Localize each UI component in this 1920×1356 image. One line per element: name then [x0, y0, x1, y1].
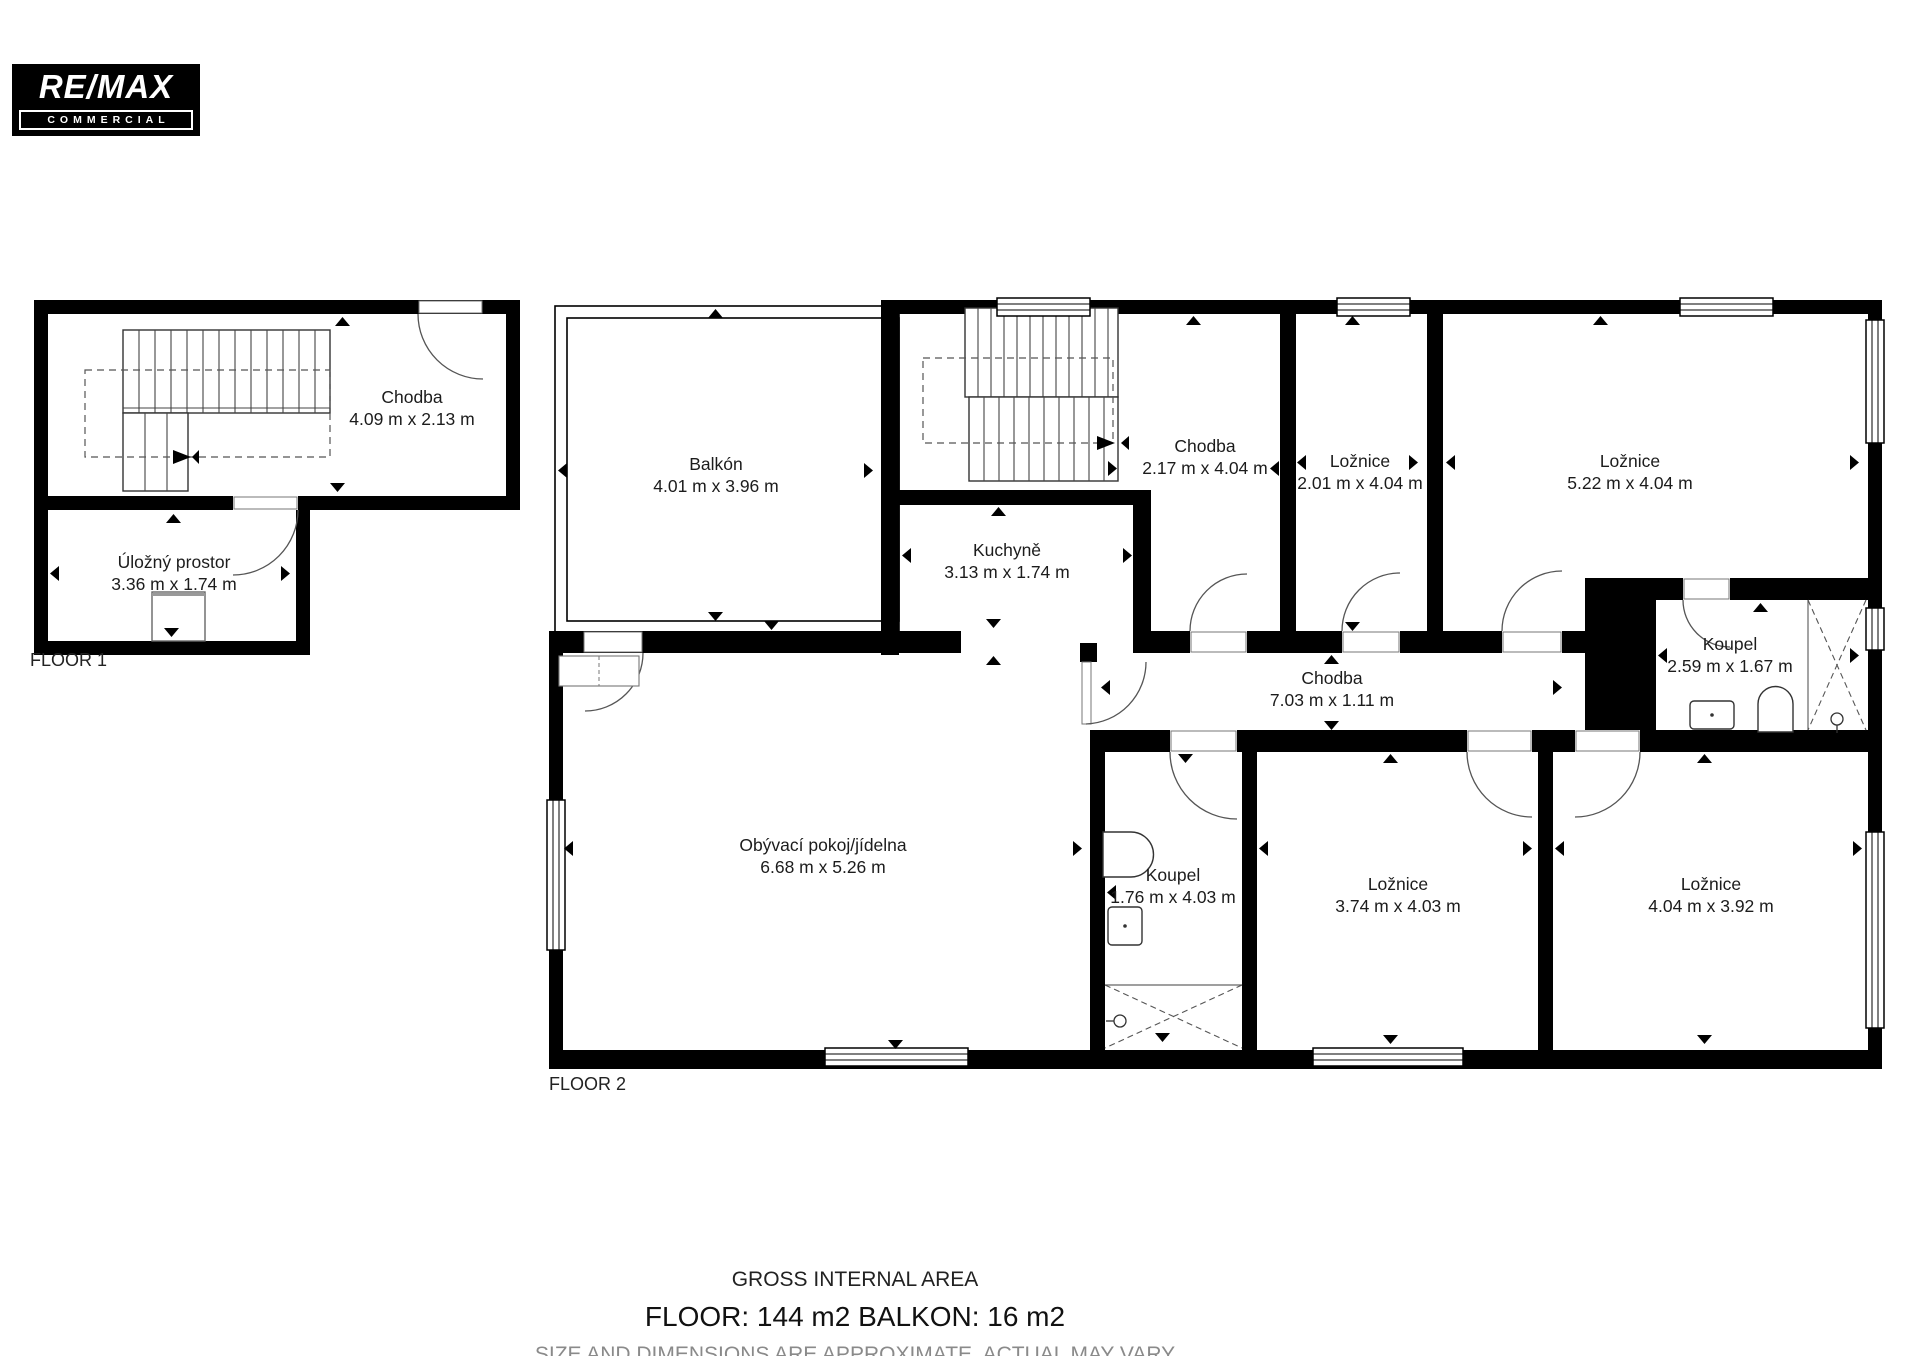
- floor2-walls: [549, 300, 1882, 1069]
- door-leaf: [1343, 632, 1399, 652]
- room-dims-loznice-velka: 5.22 m x 4.04 m: [1567, 473, 1692, 493]
- room-dims-kuchyne: 3.13 m x 1.74 m: [944, 562, 1069, 582]
- disclaimer-text: SIZE AND DIMENSIONS ARE APPROXIMATE, ACT…: [255, 1343, 1455, 1356]
- room-dims-chodba-schody: 2.17 m x 4.04 m: [1142, 458, 1267, 478]
- room-label-loznice-mala: Ložnice: [1330, 451, 1390, 471]
- room-dims-chodba: 4.09 m x 2.13 m: [349, 409, 474, 429]
- door-arc: [418, 314, 483, 379]
- logo-brand-text: RE/MAX: [12, 64, 200, 110]
- door-leaf: [1191, 632, 1246, 652]
- door-arc: [1170, 752, 1237, 819]
- room-label-kuchyne: Kuchyně: [973, 540, 1041, 560]
- door-leaf: [419, 301, 482, 313]
- floorplan-page: RE/MAX COMMERCIAL: [0, 0, 1920, 1356]
- room-label-loznice-prava: Ložnice: [1681, 874, 1741, 894]
- window-icon: [1866, 608, 1884, 650]
- logo-sub-text: COMMERCIAL: [19, 110, 193, 130]
- floor2-staircase: [923, 308, 1129, 481]
- closet-icon: [152, 592, 205, 641]
- window-icon: [1866, 320, 1884, 443]
- stair-direction-arrow-icon: [192, 450, 199, 464]
- door-arc: [1467, 752, 1532, 817]
- room-label-loznice-velka: Ložnice: [1600, 451, 1660, 471]
- window-icon: [1313, 1048, 1463, 1066]
- door-arc: [1575, 752, 1640, 817]
- room-label-chodba-schody: Chodba: [1174, 436, 1236, 456]
- dimension-markers: [558, 309, 1862, 1049]
- room-dims-ulozny-prostor: 3.36 m x 1.74 m: [111, 574, 236, 594]
- gross-internal-area-heading: GROSS INTERNAL AREA: [255, 1268, 1455, 1292]
- door-leaf: [1468, 731, 1531, 751]
- room-dims-koupel-horni: 2.59 m x 1.67 m: [1667, 656, 1792, 676]
- floor2-label: FLOOR 2: [549, 1074, 626, 1095]
- floor1-label: FLOOR 1: [30, 650, 107, 671]
- window-icon: [1337, 298, 1410, 316]
- window-icon: [1680, 298, 1773, 316]
- room-label-chodba: Chodba: [381, 387, 443, 407]
- door-leaf: [1171, 731, 1236, 751]
- room-label-ulozny-prostor: Úložný prostor: [118, 551, 231, 572]
- room-dims-obyvaci-pokoj: 6.68 m x 5.26 m: [760, 857, 885, 877]
- floor2-doors: [584, 571, 1730, 819]
- room-label-koupel-horni: Koupel: [1703, 634, 1758, 654]
- windows: [547, 298, 1884, 1066]
- room-label-balkon: Balkón: [689, 454, 743, 474]
- door-arc: [1086, 662, 1146, 724]
- door-leaf: [1082, 662, 1091, 724]
- area-summary: FLOOR: 144 m2 BALKON: 16 m2: [255, 1301, 1455, 1333]
- door-arc: [233, 510, 298, 575]
- door-leaf: [584, 632, 642, 652]
- shower-head-icon: [1106, 1015, 1126, 1027]
- room-label-obyvaci-pokoj: Obývací pokoj/jídelna: [739, 835, 907, 855]
- floor1-staircase: [85, 330, 330, 491]
- room-dims-chodba: 7.03 m x 1.11 m: [1270, 690, 1394, 710]
- window-icon: [547, 800, 565, 950]
- remax-commercial-logo: RE/MAX COMMERCIAL: [12, 64, 200, 136]
- bathtub-icon: [1758, 687, 1793, 733]
- window-icon: [825, 1048, 968, 1066]
- window-icon: [997, 298, 1090, 316]
- door-arc: [1190, 574, 1247, 631]
- room-dims-loznice-stredni: 3.74 m x 4.03 m: [1335, 896, 1460, 916]
- room-dims-koupel-dolni: 1.76 m x 4.03 m: [1110, 887, 1235, 907]
- door-leaf: [1576, 731, 1639, 751]
- floor1-plan: Chodba 4.09 m x 2.13 m Úložný prostor 3.…: [28, 295, 533, 665]
- door-arc: [1502, 571, 1562, 631]
- room-dims-loznice-mala: 2.01 m x 4.04 m: [1297, 473, 1422, 493]
- room-label-loznice-stredni: Ložnice: [1368, 874, 1428, 894]
- door-leaf: [1503, 632, 1561, 652]
- closet-icon: [559, 656, 639, 686]
- door-leaf: [234, 497, 297, 509]
- room-label-chodba: Chodba: [1301, 668, 1363, 688]
- door-leaf: [1684, 579, 1729, 599]
- stair-direction-arrow-icon: [1121, 436, 1129, 450]
- room-dims-loznice-prava: 4.04 m x 3.92 m: [1648, 896, 1773, 916]
- footer-notes: GROSS INTERNAL AREA FLOOR: 144 m2 BALKON…: [255, 1268, 1455, 1356]
- room-label-koupel-dolni: Koupel: [1146, 865, 1201, 885]
- window-icon: [1866, 832, 1884, 1028]
- floor2-plan: Balkón 4.01 m x 3.96 m Chodba 2.17 m x 4…: [545, 295, 1890, 1080]
- room-dims-balkon: 4.01 m x 3.96 m: [653, 476, 778, 496]
